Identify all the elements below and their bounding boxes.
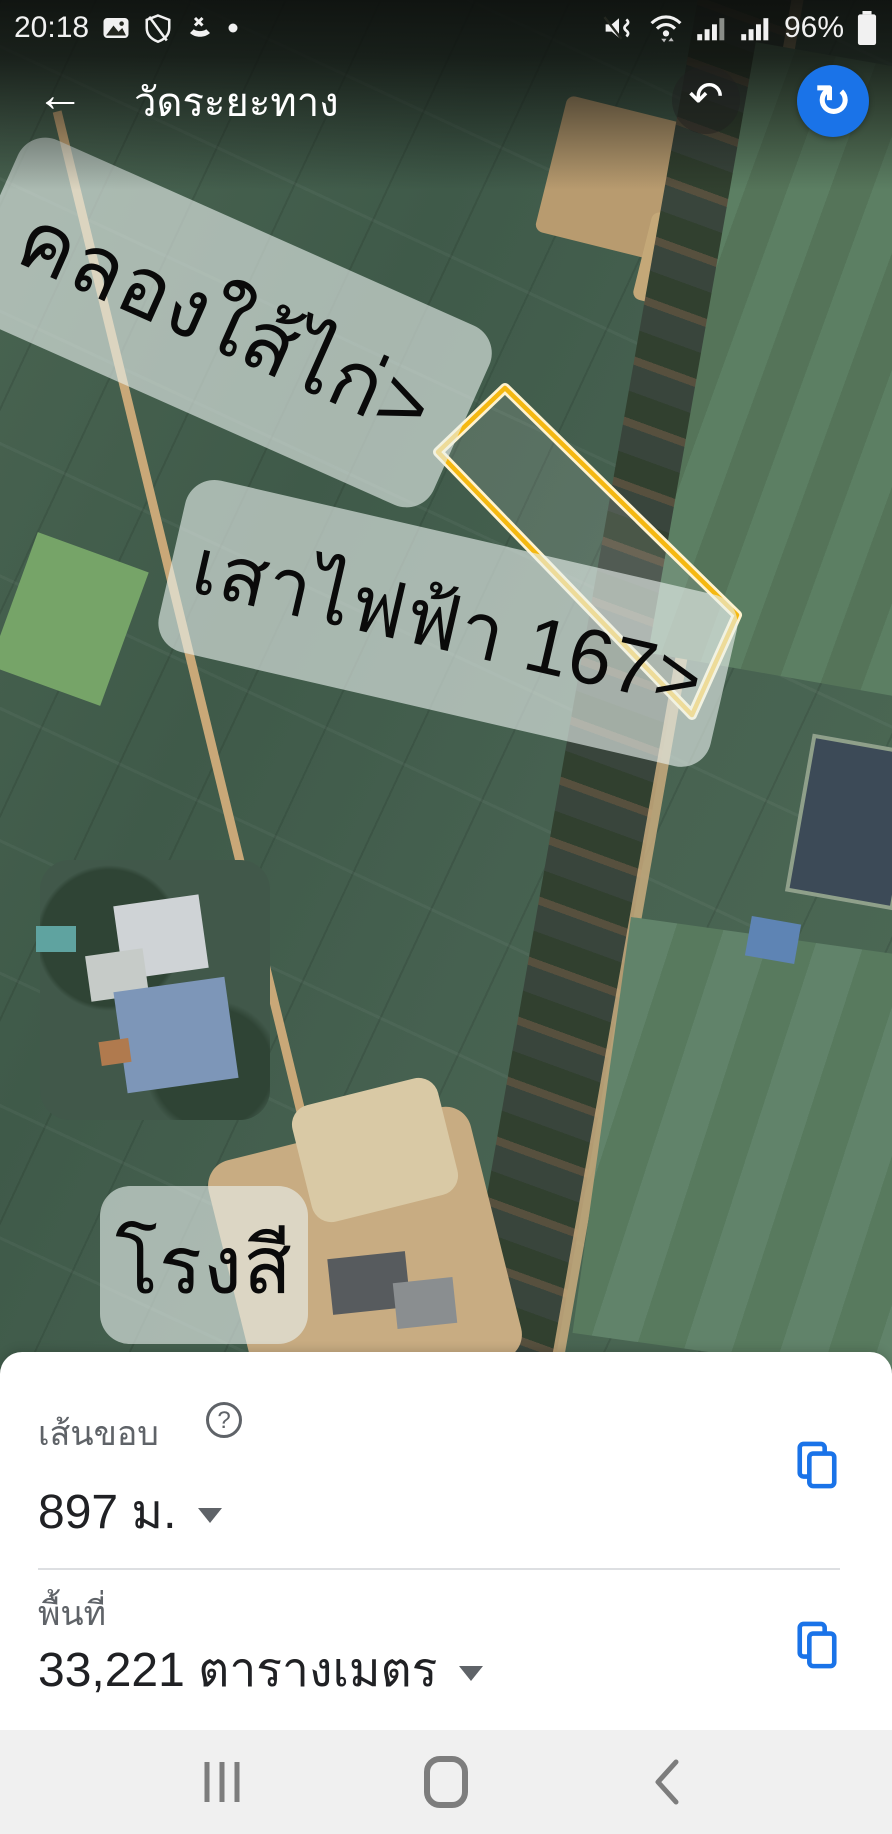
copy-perimeter-button[interactable] (794, 1440, 840, 1492)
status-bar: 20:18 (0, 0, 892, 56)
status-right: 96% (602, 11, 878, 45)
wifi-icon (648, 12, 684, 44)
back-button[interactable]: ← (30, 68, 90, 128)
home-icon (424, 1756, 468, 1808)
perimeter-label: เส้นขอบ (38, 1406, 159, 1460)
chevron-down-icon (198, 1508, 222, 1523)
area-value-dropdown[interactable]: 33,221 ตารางเมตร (38, 1632, 483, 1708)
phone-screen: คลองใส้ไก่> เสาไฟฟ้า 167> โรงสี 20:18 (0, 0, 892, 1834)
measurement-bottom-sheet: เส้นขอบ ? 897 ม. พื้นที่ 33,221 ตารางเมต… (0, 1352, 892, 1730)
help-button[interactable]: ? (206, 1402, 242, 1438)
question-mark-icon: ? (217, 1407, 230, 1434)
undo-icon: ↶ (688, 73, 723, 120)
map-viewport[interactable]: คลองใส้ไก่> เสาไฟฟ้า 167> โรงสี (0, 0, 892, 1372)
perimeter-value: 897 ม. (38, 1474, 176, 1550)
mute-vibrate-icon (602, 13, 636, 43)
recents-button[interactable] (182, 1752, 262, 1812)
image-icon (101, 13, 131, 43)
app-header: ← วัดระยะทาง ↶ ↻ (0, 62, 892, 132)
battery-icon (856, 11, 878, 45)
perimeter-value-dropdown[interactable]: 897 ม. (38, 1474, 222, 1550)
undo-button[interactable]: ↶ (672, 66, 740, 134)
signal-bars-icon (696, 13, 728, 43)
page-title: วัดระยะทาง (134, 70, 339, 134)
refresh-button[interactable]: ↻ (797, 65, 869, 137)
missed-call-icon (185, 13, 215, 43)
home-button[interactable] (406, 1752, 486, 1812)
clock: 20:18 (14, 11, 89, 45)
section-divider (38, 1568, 840, 1570)
signal-bars-icon (740, 13, 772, 43)
map-annotation-rice-mill: โรงสี (100, 1186, 308, 1344)
map-annotation-text: โรงสี (115, 1202, 293, 1329)
chevron-down-icon (459, 1666, 483, 1681)
shield-off-icon (143, 13, 173, 43)
status-left: 20:18 (14, 11, 239, 45)
android-nav-bar (0, 1730, 892, 1834)
back-arrow-icon: ← (36, 69, 84, 122)
back-icon (642, 1754, 698, 1810)
recents-icon (194, 1754, 250, 1810)
battery-percent: 96% (784, 11, 844, 45)
back-nav-button[interactable] (630, 1752, 710, 1812)
area-value: 33,221 ตารางเมตร (38, 1632, 437, 1708)
copy-area-button[interactable] (794, 1620, 840, 1672)
notification-dot (227, 22, 239, 34)
refresh-icon: ↻ (815, 76, 852, 127)
